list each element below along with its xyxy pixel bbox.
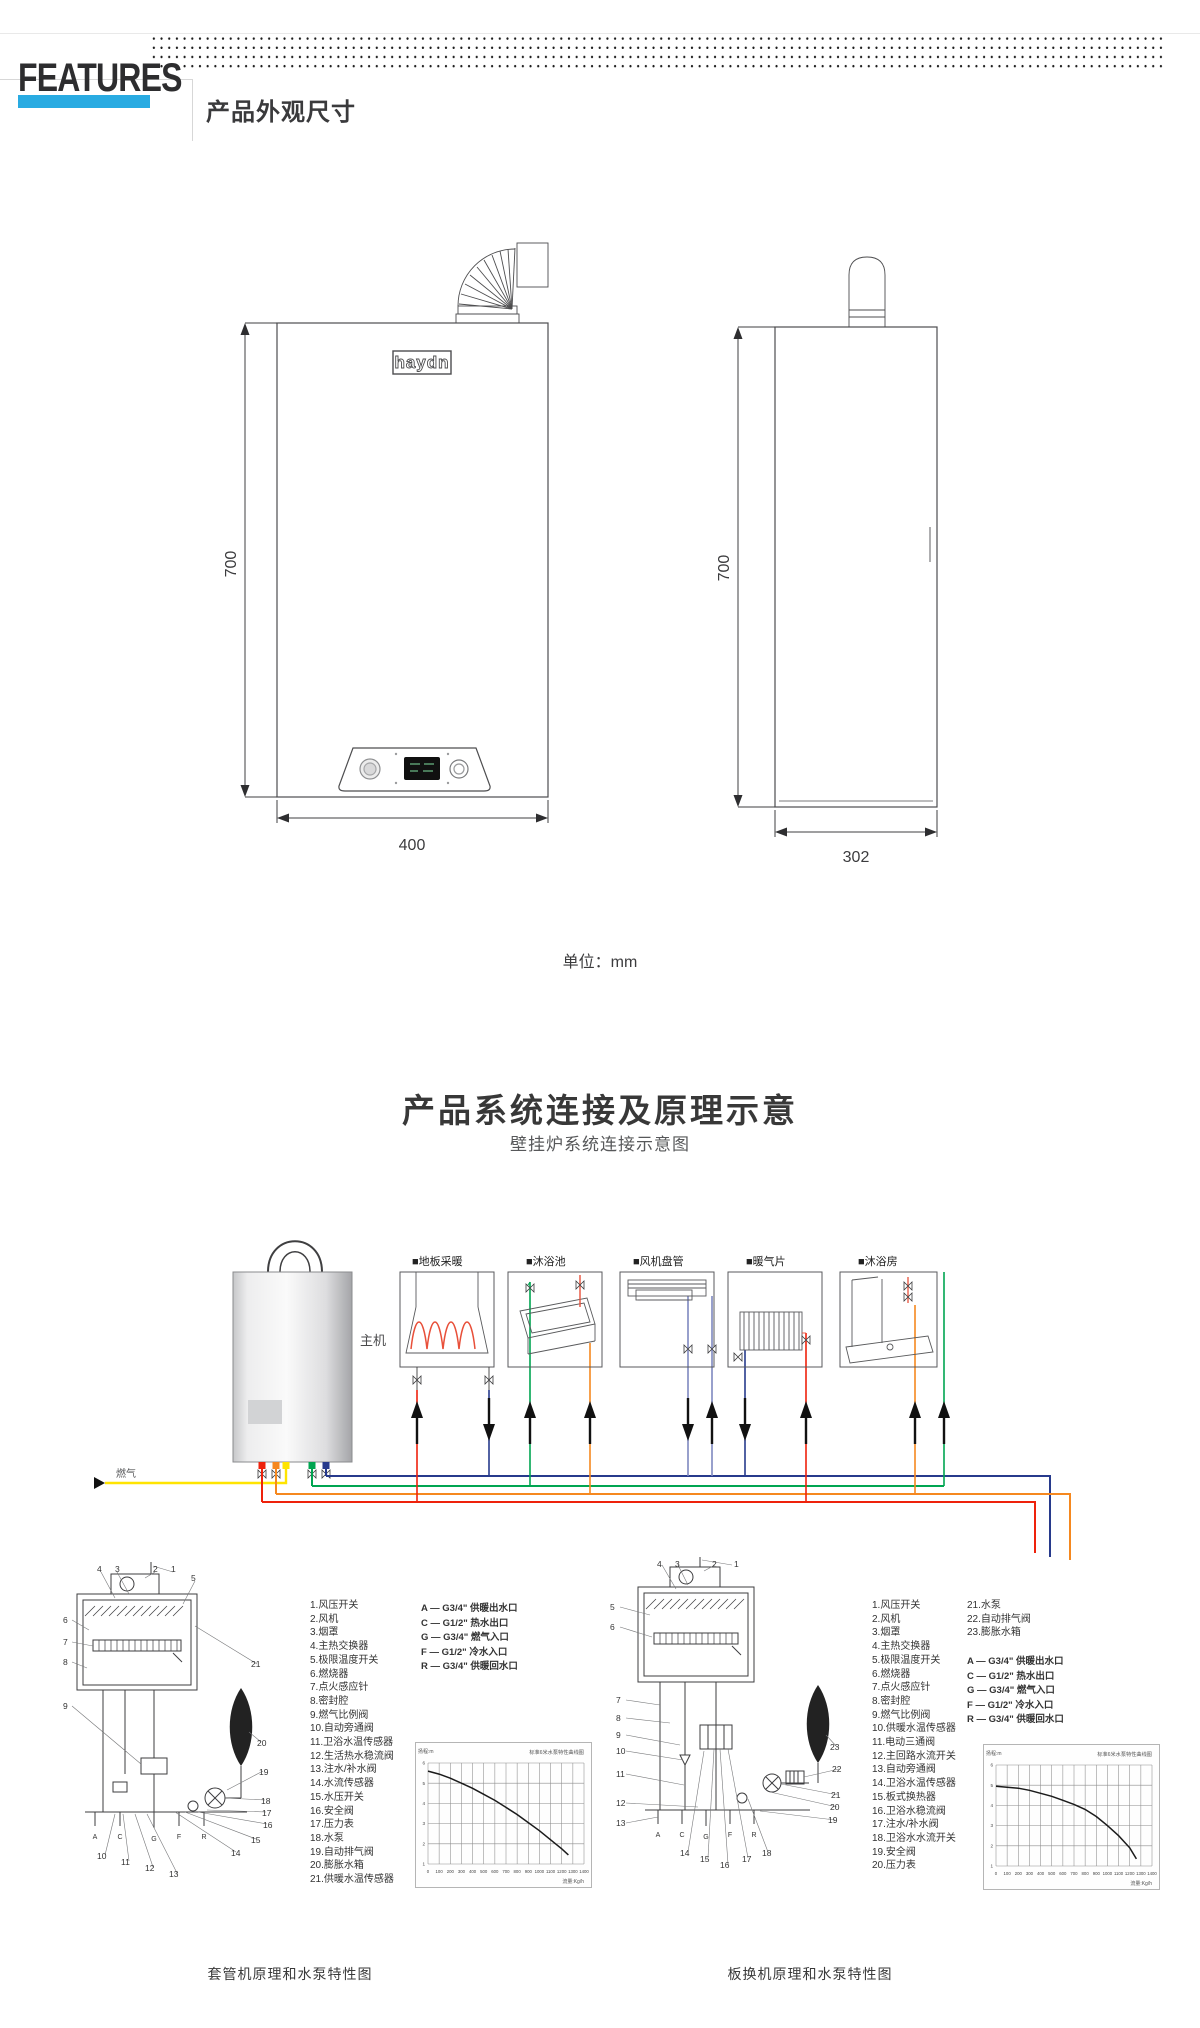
terminal-label-fan-coil: ■风机盘管 xyxy=(633,1254,684,1268)
callout-label: 2 xyxy=(153,1564,158,1574)
callout-label: 17 xyxy=(262,1808,272,1818)
part-item: 14.水流传感器 xyxy=(310,1777,394,1791)
part-item: 3.烟罩 xyxy=(310,1626,394,1640)
callout-label: 21 xyxy=(831,1790,841,1800)
part-item: 23.膨胀水箱 xyxy=(967,1626,1031,1640)
part-item: 13.自动旁通阀 xyxy=(872,1763,956,1777)
connection-item: A — G3/4" 供暖出水口 xyxy=(421,1602,518,1617)
part-item: 12.生活热水稳流阀 xyxy=(310,1750,394,1764)
callout-label: 15 xyxy=(251,1835,261,1845)
x-tick-label: 1000 xyxy=(1103,1871,1113,1876)
connection-item: C — G1/2" 热水出口 xyxy=(421,1617,518,1632)
gas-label: 燃气 xyxy=(116,1467,136,1480)
connection-item: G — G3/4" 燃气入口 xyxy=(967,1684,1064,1699)
x-tick-label: 800 xyxy=(514,1869,522,1874)
bathtub-drawing xyxy=(520,1275,595,1354)
x-tick-label: 100 xyxy=(1004,1871,1012,1876)
chart-ylabel: 扬程:m xyxy=(418,1748,434,1755)
port-valves xyxy=(258,1470,330,1478)
callout-label: 5 xyxy=(610,1602,615,1612)
part-item: 5.极限温度开关 xyxy=(310,1654,394,1668)
x-tick-label: 200 xyxy=(447,1869,455,1874)
system-section-subtitle: 壁挂炉系统连接示意图 xyxy=(0,1130,1200,1155)
pump-curve-chart-left: 0100200300400500600700800900100011001200… xyxy=(415,1742,592,1888)
callout-label: F xyxy=(177,1834,181,1841)
callout-label: 19 xyxy=(828,1815,838,1825)
y-tick-label: 1 xyxy=(990,1864,993,1869)
part-item: 4.主热交换器 xyxy=(872,1640,956,1654)
y-tick-label: 4 xyxy=(990,1803,993,1808)
bithermic-boiler-schematic: 123456789101112131415161718192021 ACGFR xyxy=(55,1560,305,1890)
chart-xlabel: 流量:Kg/h xyxy=(562,1878,584,1885)
callout-label: 18 xyxy=(261,1796,271,1806)
part-item: 8.密封腔 xyxy=(872,1695,956,1709)
callout-label: 4 xyxy=(97,1564,102,1574)
part-item: 22.自动排气阀 xyxy=(967,1613,1031,1627)
part-item: 20.压力表 xyxy=(872,1859,956,1873)
y-tick-label: 2 xyxy=(422,1841,425,1846)
x-tick-label: 1400 xyxy=(579,1869,589,1874)
callout-label: 20 xyxy=(257,1738,267,1748)
boiler-label: 主机 xyxy=(360,1333,386,1348)
y-tick-label: 5 xyxy=(422,1781,425,1786)
callout-label: 15 xyxy=(700,1854,710,1864)
part-item: 15.板式换热器 xyxy=(872,1791,956,1805)
callout-label: R xyxy=(751,1832,756,1839)
parts-list-left: 1.风压开关2.风机3.烟罩4.主热交换器5.极限温度开关6.燃烧器7.点火感应… xyxy=(310,1599,394,1887)
callout-label: C xyxy=(679,1832,684,1839)
callout-label: 11 xyxy=(616,1769,625,1779)
part-item: 10.自动旁通阀 xyxy=(310,1722,394,1736)
boiler-ports xyxy=(259,1462,330,1469)
x-tick-label: 700 xyxy=(1070,1871,1078,1876)
caption-left: 套管机原理和水泵特性图 xyxy=(60,1964,520,1984)
front-view-line-art xyxy=(241,243,549,823)
callout-label: 3 xyxy=(115,1564,120,1574)
callout-label: 8 xyxy=(63,1657,68,1667)
chart-frame xyxy=(416,1743,592,1888)
pipe-bus xyxy=(262,1469,1070,1560)
callout-label: 10 xyxy=(97,1851,107,1861)
part-item: 1.风压开关 xyxy=(872,1599,956,1613)
y-tick-label: 3 xyxy=(422,1821,425,1826)
system-connection-diagram: 主机 燃气 xyxy=(90,1185,1110,1575)
schematic-callouts: 1234567891011121314151617181920212223 xyxy=(610,1559,842,1870)
callout-label: 1 xyxy=(171,1564,176,1574)
x-tick-label: 800 xyxy=(1082,1871,1090,1876)
system-section-title: 产品系统连接及原理示意 xyxy=(0,1084,1200,1132)
chart-ylabel: 扬程:m xyxy=(986,1750,1002,1757)
callout-label: 13 xyxy=(169,1869,179,1879)
y-tick-label: 3 xyxy=(990,1823,993,1828)
terminal-label-shower-room: ■沐浴房 xyxy=(858,1255,898,1268)
part-item: 13.注水/补水阀 xyxy=(310,1763,394,1777)
chart-frame xyxy=(984,1745,1160,1890)
callout-label: 6 xyxy=(610,1622,615,1632)
part-item: 3.烟罩 xyxy=(872,1626,956,1640)
x-tick-label: 900 xyxy=(1093,1871,1101,1876)
part-item: 12.主回路水流开关 xyxy=(872,1750,956,1764)
part-item: 19.安全阀 xyxy=(872,1846,956,1860)
x-tick-label: 500 xyxy=(1048,1871,1056,1876)
callout-label: 14 xyxy=(231,1848,241,1858)
x-tick-label: 1200 xyxy=(1125,1871,1135,1876)
chart-title: 标准6米水泵特性曲线图 xyxy=(1097,1750,1152,1758)
connection-item: A — G3/4" 供暖出水口 xyxy=(967,1655,1064,1670)
x-tick-label: 400 xyxy=(1037,1871,1045,1876)
side-view-line-art xyxy=(734,257,938,837)
x-tick-label: 600 xyxy=(491,1869,499,1874)
callout-label: 13 xyxy=(616,1818,626,1828)
callout-label: 7 xyxy=(63,1637,68,1647)
callout-label: 11 xyxy=(121,1857,130,1867)
y-tick-label: 6 xyxy=(990,1763,993,1768)
part-item: 10.供暖水温传感器 xyxy=(872,1722,956,1736)
section-title: 产品外观尺寸 xyxy=(206,92,356,127)
callout-label: 6 xyxy=(63,1615,68,1625)
callout-label: R xyxy=(201,1834,206,1841)
part-item: 15.水压开关 xyxy=(310,1791,394,1805)
callout-label: 23 xyxy=(830,1742,840,1752)
part-item: 14.卫浴水温传感器 xyxy=(872,1777,956,1791)
x-tick-label: 1000 xyxy=(535,1869,545,1874)
callout-label: 17 xyxy=(742,1854,752,1864)
terminal-label-floor-heating: ■地板采暖 xyxy=(412,1254,463,1268)
connections-list-left: A — G3/4" 供暖出水口C — G1/2" 热水出口G — G3/4" 燃… xyxy=(421,1602,518,1675)
part-item: 16.安全阀 xyxy=(310,1805,394,1819)
caption-right: 板换机原理和水泵特性图 xyxy=(590,1964,1030,1984)
callout-label: 10 xyxy=(616,1746,626,1756)
x-tick-label: 700 xyxy=(502,1869,510,1874)
features-wordmark: FEATURES xyxy=(18,56,182,101)
x-tick-label: 1300 xyxy=(1136,1871,1146,1876)
callout-label: C xyxy=(117,1834,122,1841)
callout-label: 2 xyxy=(712,1559,717,1569)
callout-label: 9 xyxy=(616,1730,621,1740)
part-item: 17.压力表 xyxy=(310,1818,394,1832)
x-tick-label: 1200 xyxy=(557,1869,567,1874)
callout-label: 12 xyxy=(616,1798,626,1808)
callout-label: 1 xyxy=(734,1559,739,1569)
part-item: 7.点火感应针 xyxy=(310,1681,394,1695)
y-tick-label: 6 xyxy=(422,1761,425,1766)
part-item: 18.水泵 xyxy=(310,1832,394,1846)
part-item: 18.卫浴水水流开关 xyxy=(872,1832,956,1846)
callout-label: 7 xyxy=(616,1695,621,1705)
y-tick-label: 2 xyxy=(990,1843,993,1848)
brand-logo-text: haydn xyxy=(394,353,449,372)
connection-item: F — G1/2" 冷水入口 xyxy=(421,1646,518,1661)
part-item: 11.电动三通阀 xyxy=(872,1736,956,1750)
callout-label: 16 xyxy=(263,1820,273,1830)
x-tick-label: 1100 xyxy=(1114,1871,1124,1876)
part-item: 5.极限温度开关 xyxy=(872,1654,956,1668)
x-tick-label: 1300 xyxy=(568,1869,578,1874)
front-height-dim: 700 xyxy=(223,551,240,578)
product-features-page: FEATURES 产品外观尺寸 xyxy=(0,0,1200,2028)
callout-label: 3 xyxy=(675,1559,680,1569)
callout-label: 19 xyxy=(259,1767,269,1777)
callout-label: 5 xyxy=(191,1573,196,1583)
callout-label: 16 xyxy=(720,1860,730,1870)
pipe-risers xyxy=(417,1272,944,1502)
x-tick-label: 900 xyxy=(525,1869,533,1874)
part-item: 8.密封腔 xyxy=(310,1695,394,1709)
callout-label: 14 xyxy=(680,1848,690,1858)
callout-label: 8 xyxy=(616,1713,621,1723)
chart-title: 标准6米水泵特性曲线图 xyxy=(529,1748,584,1756)
part-item: 2.风机 xyxy=(310,1613,394,1627)
part-item: 11.卫浴水温传感器 xyxy=(310,1736,394,1750)
side-width-dim: 302 xyxy=(843,849,870,866)
callout-label: 21 xyxy=(251,1659,261,1669)
part-item: 9.燃气比例阀 xyxy=(872,1709,956,1723)
x-tick-label: 300 xyxy=(1026,1871,1034,1876)
front-width-dim: 400 xyxy=(399,837,426,854)
callout-label: 18 xyxy=(762,1848,772,1858)
x-tick-label: 500 xyxy=(480,1869,488,1874)
connection-item: C — G1/2" 热水出口 xyxy=(967,1670,1064,1685)
part-item: 9.燃气比例阀 xyxy=(310,1709,394,1723)
connection-item: R — G3/4" 供暖回水口 xyxy=(967,1713,1064,1728)
part-item: 20.膨胀水箱 xyxy=(310,1859,394,1873)
part-item: 16.卫浴水稳流阀 xyxy=(872,1805,956,1819)
parts-list-right: 1.风压开关2.风机3.烟罩4.主热交换器5.极限温度开关6.燃烧器7.点火感应… xyxy=(872,1599,956,1873)
callout-label: 12 xyxy=(145,1863,155,1873)
part-item: 17.注水/补水阀 xyxy=(872,1818,956,1832)
y-tick-label: 4 xyxy=(422,1801,425,1806)
part-item: 6.燃烧器 xyxy=(872,1668,956,1682)
connection-item: G — G3/4" 燃气入口 xyxy=(421,1631,518,1646)
callout-label: G xyxy=(703,1834,708,1841)
unit-note: 单位：mm xyxy=(0,948,1200,972)
callout-label: G xyxy=(151,1836,156,1843)
schematic-port-letters: ACGFR xyxy=(656,1832,757,1841)
callout-label: A xyxy=(93,1834,98,1841)
callout-label: A xyxy=(656,1832,661,1839)
side-height-dim: 700 xyxy=(716,555,733,582)
dimension-drawings: haydn 700 400 700 302 xyxy=(0,230,1200,930)
connections-list-right: A — G3/4" 供暖出水口C — G1/2" 热水出口G — G3/4" 燃… xyxy=(967,1655,1064,1728)
floor-heating-drawing xyxy=(406,1272,493,1390)
parts-list-right-2: 21.水泵22.自动排气阀23.膨胀水箱 xyxy=(967,1599,1031,1640)
callout-label: 20 xyxy=(830,1802,840,1812)
callout-label: 9 xyxy=(63,1701,68,1711)
x-tick-label: 600 xyxy=(1059,1871,1067,1876)
shower-room-drawing xyxy=(846,1277,933,1363)
y-tick-label: 1 xyxy=(422,1862,425,1867)
chart-xlabel: 流量:Kg/h xyxy=(1130,1880,1152,1887)
flow-arrows xyxy=(411,1398,950,1444)
part-item: 21.水泵 xyxy=(967,1599,1031,1613)
part-item: 1.风压开关 xyxy=(310,1599,394,1613)
x-tick-label: 100 xyxy=(436,1869,444,1874)
terminal-label-radiator: ■暖气片 xyxy=(746,1254,786,1268)
x-tick-label: 400 xyxy=(469,1869,477,1874)
gas-flow-arrow-icon xyxy=(94,1477,105,1489)
plate-exchanger-boiler-schematic: 1234567891011121314151617181920212223 AC… xyxy=(600,1555,860,1890)
callout-label: 4 xyxy=(657,1559,662,1569)
x-tick-label: 1100 xyxy=(546,1869,556,1874)
fan-coil-drawing xyxy=(628,1280,716,1353)
x-tick-label: 300 xyxy=(458,1869,466,1874)
connection-item: F — G1/2" 冷水入口 xyxy=(967,1699,1064,1714)
x-tick-label: 1400 xyxy=(1147,1871,1157,1876)
part-item: 19.自动排气阀 xyxy=(310,1846,394,1860)
part-item: 21.供暖水温传感器 xyxy=(310,1873,394,1887)
header-rule-vertical xyxy=(192,79,193,141)
part-item: 6.燃烧器 xyxy=(310,1668,394,1682)
dot-pattern-decoration xyxy=(150,34,1164,74)
x-tick-label: 200 xyxy=(1015,1871,1023,1876)
boiler-unit xyxy=(233,1241,352,1462)
callout-label: 22 xyxy=(832,1764,842,1774)
part-item: 7.点火感应针 xyxy=(872,1681,956,1695)
part-item: 4.主热交换器 xyxy=(310,1640,394,1654)
connection-item: R — G3/4" 供暖回水口 xyxy=(421,1660,518,1675)
callout-label: F xyxy=(728,1832,732,1839)
pump-curve-chart-right: 0100200300400500600700800900100011001200… xyxy=(983,1744,1160,1890)
y-tick-label: 5 xyxy=(990,1783,993,1788)
part-item: 2.风机 xyxy=(872,1613,956,1627)
terminal-label-bath-pool: ■沐浴池 xyxy=(526,1255,566,1268)
